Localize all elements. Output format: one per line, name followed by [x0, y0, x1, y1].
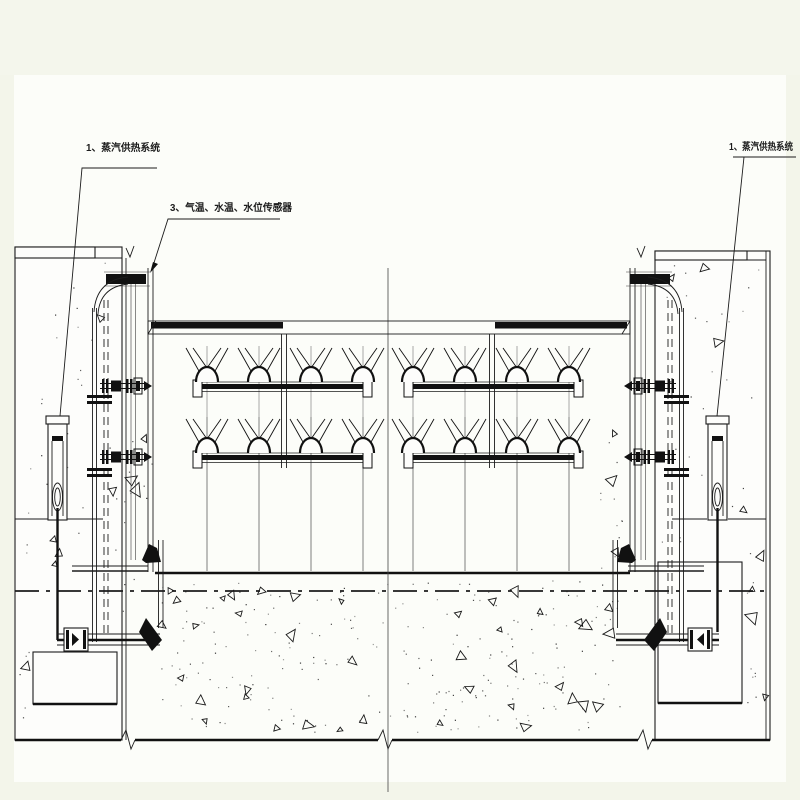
label-steam-supply-left: 1、蒸汽供热系统: [86, 141, 160, 154]
label-sensors: 3、气温、水温、水位传感器: [170, 201, 293, 214]
drawing-stage: 1、蒸汽供热系统 3、气温、水温、水位传感器 1、蒸汽供热系统: [0, 0, 800, 800]
label-steam-supply-right: 1、蒸汽供热系统: [729, 140, 793, 153]
gate-section-drawing: 1、蒸汽供热系统 3、气温、水温、水位传感器 1、蒸汽供热系统: [0, 0, 800, 800]
left-footing: [33, 652, 117, 704]
